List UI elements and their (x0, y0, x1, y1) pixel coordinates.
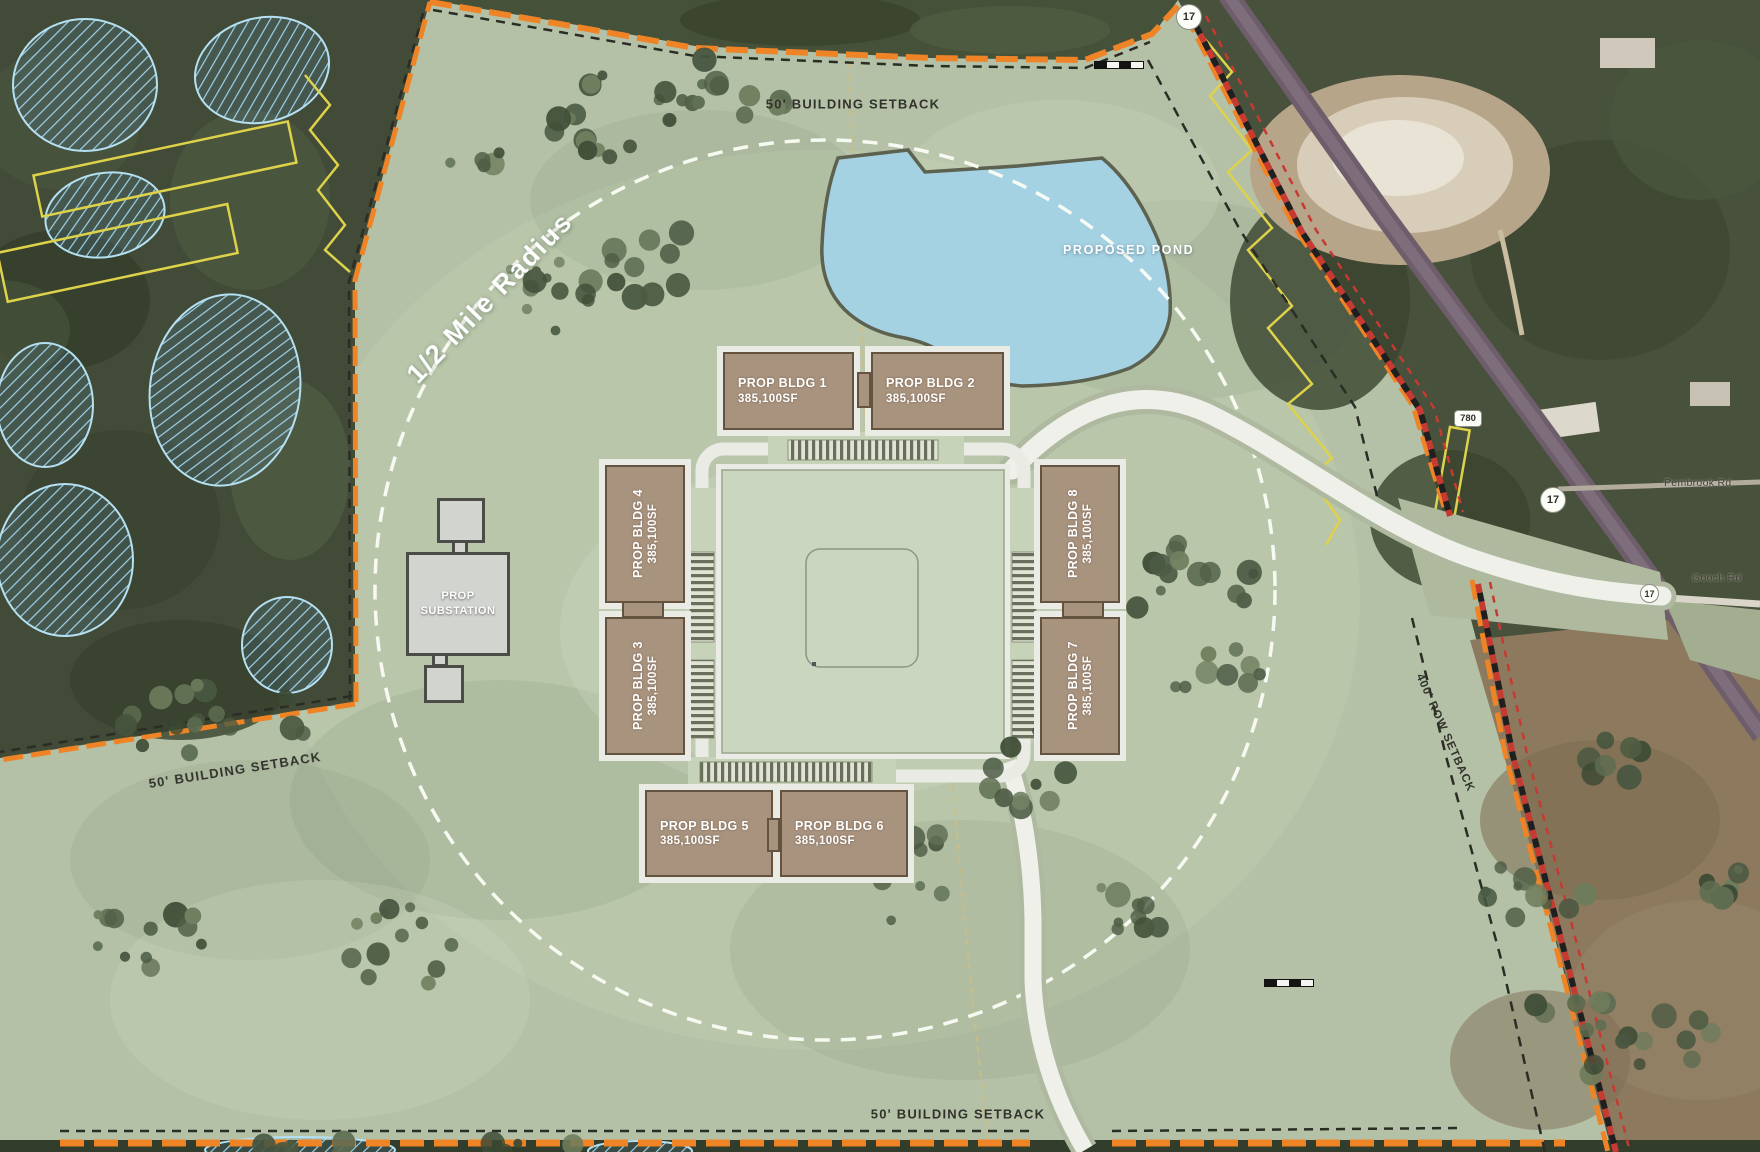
building-prop-bldg-2: PROP BLDG 2 385,100SF (871, 352, 1004, 430)
building-name: PROP BLDG 5 (660, 818, 749, 834)
substation-label: PROP (409, 589, 507, 604)
building-area: 385,100SF (1081, 490, 1096, 579)
proposed-pond-label: PROPOSED POND (1063, 243, 1194, 257)
building-connector (1062, 601, 1104, 618)
building-area: 385,100SF (886, 392, 975, 407)
building-connector (622, 601, 664, 618)
building-name: PROP BLDG 4 (629, 490, 645, 579)
route-780-shield-icon: 780 (1454, 410, 1482, 427)
building-name: PROP BLDG 1 (738, 375, 827, 391)
substation-label: SUBSTATION (409, 604, 507, 619)
gooch-rd-label: Gooch Rd (1692, 572, 1742, 584)
building-area: 385,100SF (738, 392, 827, 407)
building-name: PROP BLDG 7 (1064, 642, 1080, 731)
building-name: PROP BLDG 8 (1064, 490, 1080, 579)
building-name: PROP BLDG 2 (886, 375, 975, 391)
building-connector (767, 818, 780, 852)
route-17-shield-icon: 17 (1640, 584, 1659, 603)
building-connector (857, 372, 871, 408)
building-area: 385,100SF (795, 834, 884, 849)
site-plan: PROP BLDG 1 385,100SF PROP BLDG 2 385,10… (0, 0, 1760, 1152)
building-name: PROP BLDG 6 (795, 818, 884, 834)
substation-lower-pad (424, 665, 464, 703)
building-prop-bldg-7: PROP BLDG 7 385,100SF (1040, 617, 1120, 755)
route-17-shield-icon: 17 (1176, 4, 1202, 30)
building-area: 385,100SF (646, 490, 661, 579)
building-prop-bldg-6: PROP BLDG 6 385,100SF (780, 790, 908, 877)
setback-label-bottom: 50' BUILDING SETBACK (871, 1107, 1045, 1122)
substation-main-pad: PROP SUBSTATION (406, 552, 510, 656)
building-prop-bldg-1: PROP BLDG 1 385,100SF (723, 352, 854, 430)
scale-bar-icon (1264, 979, 1314, 987)
building-prop-bldg-5: PROP BLDG 5 385,100SF (645, 790, 773, 877)
site-plan-canvas (0, 0, 1760, 1152)
pembrook-rd-label: Pembrook Rd (1664, 477, 1732, 489)
building-prop-bldg-4: PROP BLDG 4 385,100SF (605, 465, 685, 603)
building-prop-bldg-3: PROP BLDG 3 385,100SF (605, 617, 685, 755)
scale-bar-icon (1094, 61, 1144, 69)
building-area: 385,100SF (646, 642, 661, 731)
substation-upper-pad (437, 498, 485, 543)
setback-label-top: 50' BUILDING SETBACK (766, 97, 940, 112)
route-17-shield-icon: 17 (1540, 487, 1566, 513)
building-area: 385,100SF (660, 834, 749, 849)
building-area: 385,100SF (1081, 642, 1096, 731)
building-name: PROP BLDG 3 (629, 642, 645, 731)
building-prop-bldg-8: PROP BLDG 8 385,100SF (1040, 465, 1120, 603)
